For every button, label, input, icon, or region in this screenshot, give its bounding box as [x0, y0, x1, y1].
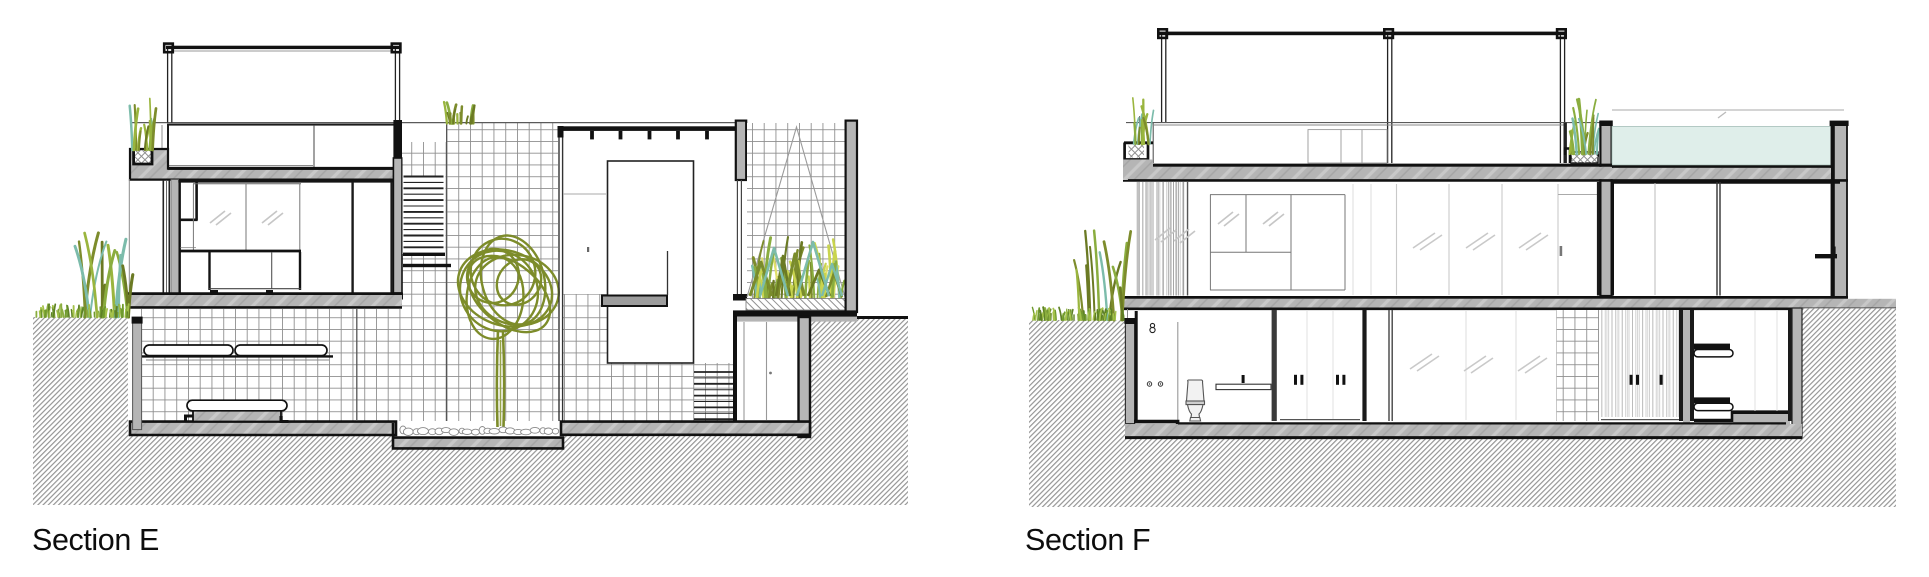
svg-text:Section E: Section E — [32, 523, 159, 557]
svg-text:Section F: Section F — [1025, 523, 1150, 557]
